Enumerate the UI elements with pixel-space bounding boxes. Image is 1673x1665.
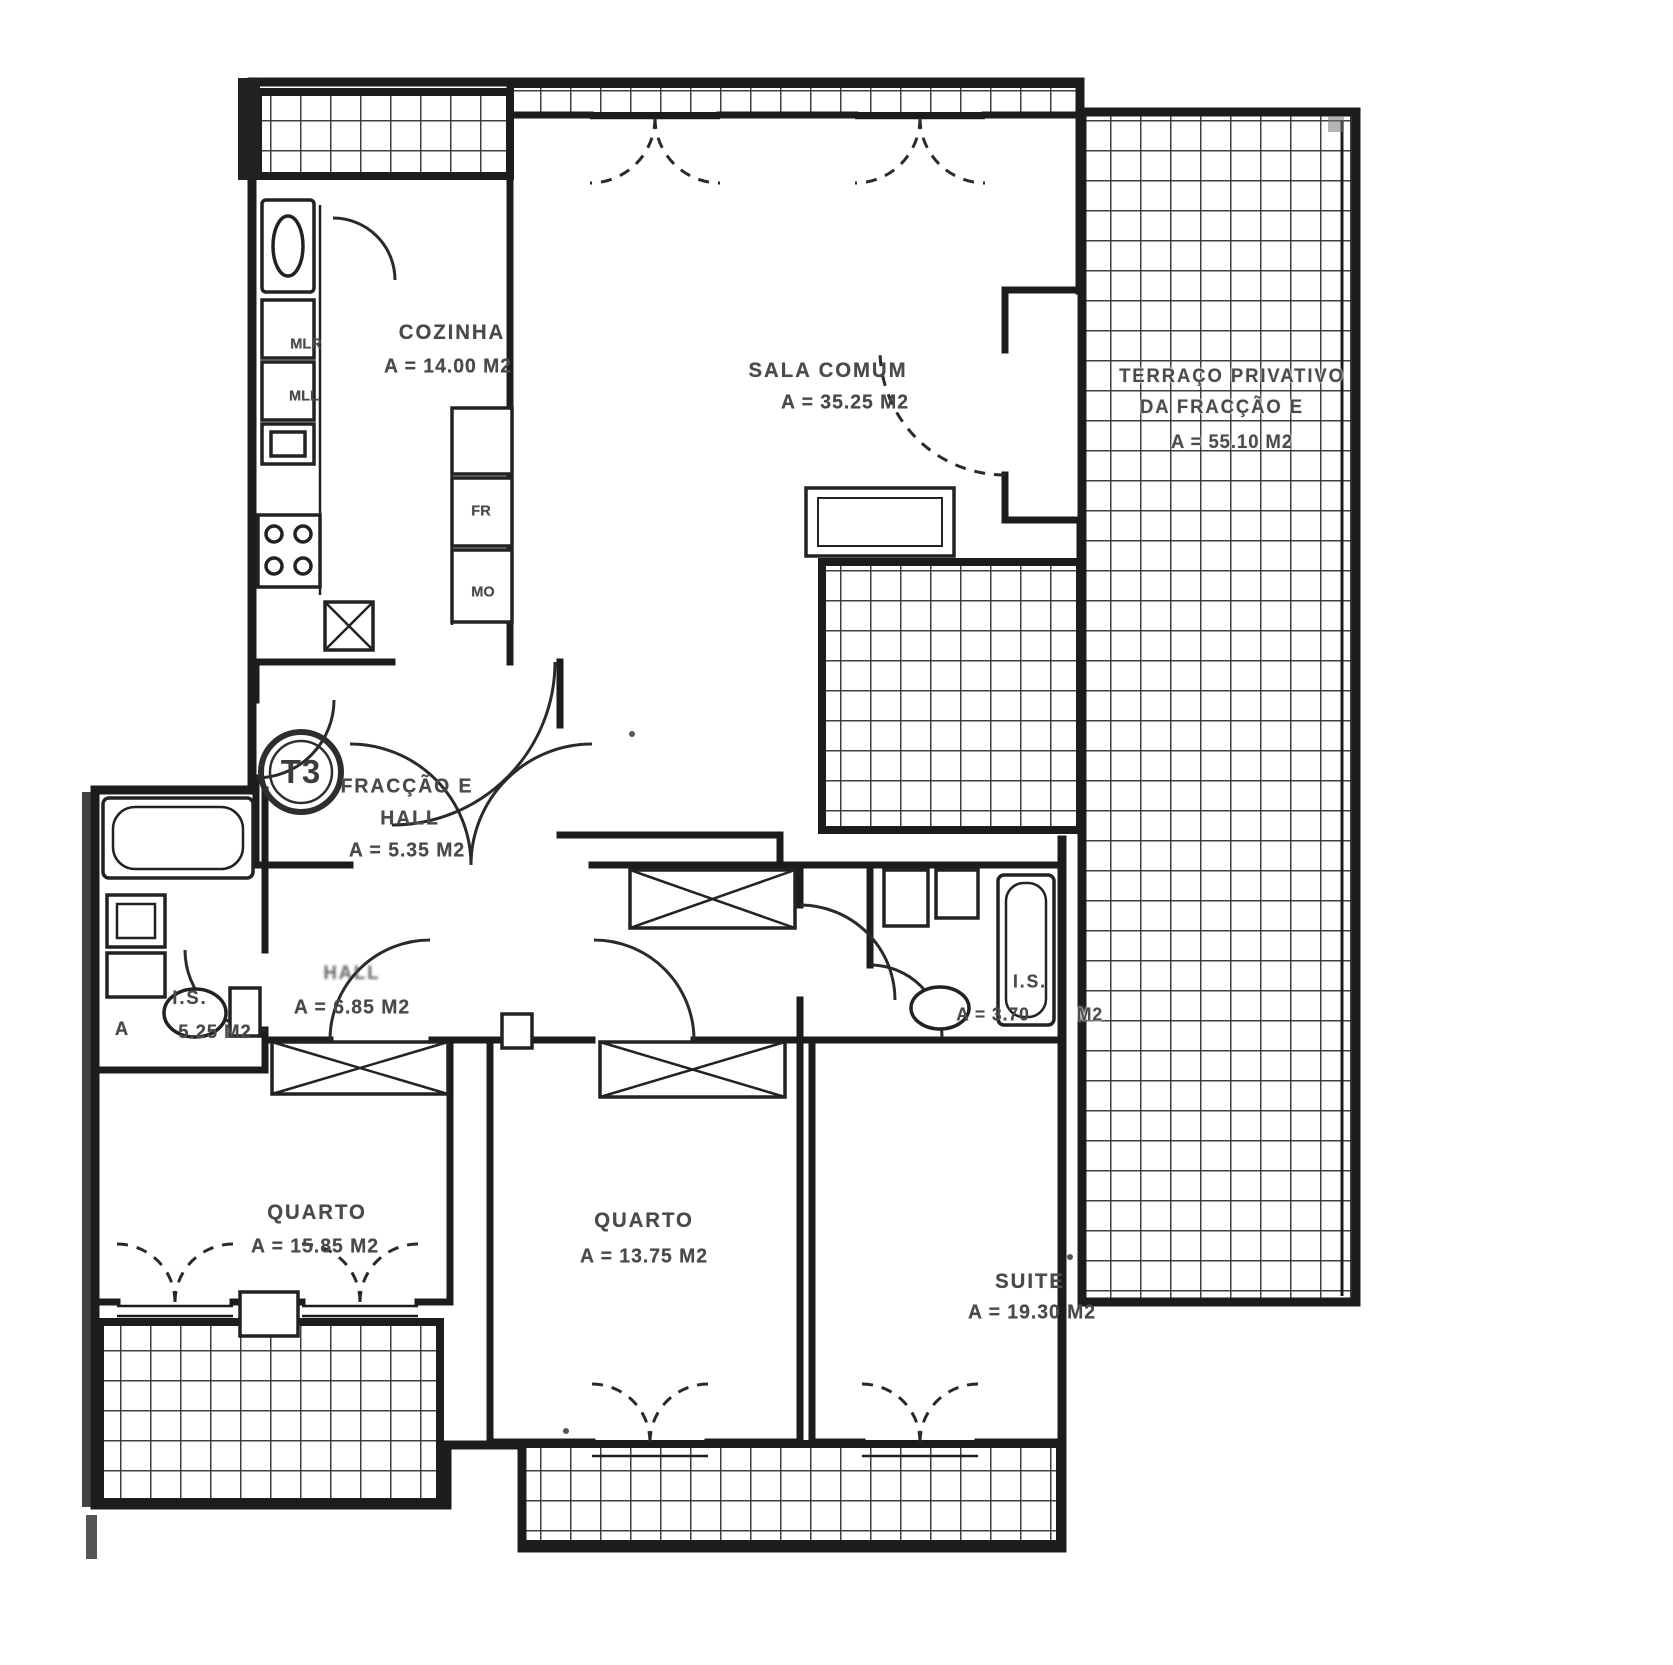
label-is-right-unit: M2	[1077, 1005, 1103, 1026]
pivot-block	[502, 1014, 532, 1048]
floorplan-page: COZINHA A = 14.00 M2 SALA COMUM A = 35.2…	[0, 0, 1673, 1665]
balcony-bottom-center	[522, 1444, 1060, 1544]
door-arc-entry-right	[471, 744, 592, 865]
bathtub-left-inner	[113, 807, 243, 869]
label-hall-area: A = 6.85 M2	[294, 997, 410, 1020]
unit-badge-label: T3	[281, 753, 322, 791]
sala-console-inner	[818, 498, 942, 546]
label-fraccao-line2: HALL	[380, 808, 439, 831]
label-is-right-name: I.S.	[1013, 972, 1047, 993]
label-quarto1-area: A = 15.85 M2	[251, 1236, 379, 1259]
kitchen-cabinet-inner	[271, 432, 305, 456]
door-arc-kitchen-top	[333, 218, 395, 280]
label-fraccao-line1: FRACÇÃO E	[341, 776, 474, 799]
label-quarto2-area: A = 13.75 M2	[580, 1246, 708, 1269]
door-arc-quarto2	[594, 940, 694, 1040]
label-is-right-area: A = 3.70	[956, 1005, 1030, 1026]
kitchen-tall-cabinet	[452, 408, 512, 474]
label-cozinha-area: A = 14.00 M2	[384, 356, 512, 379]
label-suite-area: A = 19.30 M2	[968, 1302, 1096, 1325]
label-sala-name: SALA COMUM	[749, 359, 908, 383]
door-arc-suite-lobby	[800, 905, 895, 1000]
label-fraccao-area: A = 5.35 M2	[349, 840, 465, 863]
floorplan-svg	[0, 0, 1673, 1665]
label-quarto1-name: QUARTO	[267, 1201, 367, 1225]
label-appliance-fr: FR	[471, 503, 490, 520]
terrace-inner-block	[822, 562, 1080, 830]
balcony-top-left	[258, 92, 510, 176]
kitchen-tub-basin	[273, 216, 303, 276]
terrace-main	[1082, 112, 1356, 1302]
planter-strip-top	[510, 85, 1080, 115]
label-appliance-mo: MO	[471, 584, 494, 601]
label-sala-area: A = 35.25 M2	[781, 392, 909, 415]
label-appliance-mll: MLL	[289, 388, 319, 405]
label-suite-name: SUITE	[995, 1270, 1065, 1294]
label-terraco-line1: TERRAÇO PRIVATIVO	[1119, 366, 1345, 388]
label-is-left-prefix: A	[115, 1019, 129, 1041]
label-terraco-area: A = 55.10 M2	[1171, 432, 1293, 454]
shelf-right-2	[936, 870, 978, 918]
label-terraco-line2: DA FRACÇÃO E	[1140, 397, 1304, 419]
balcony-pillar	[240, 1292, 298, 1336]
label-is-left-area: 5.25 M2	[178, 1022, 251, 1044]
door-arc-quarto1	[330, 940, 430, 1040]
label-quarto2-name: QUARTO	[594, 1209, 694, 1233]
balcony-bottom-left	[100, 1322, 440, 1502]
label-is-left-name: I.S.	[172, 988, 207, 1010]
label-appliance-mlr: MLR	[290, 336, 322, 353]
bidet-left	[107, 953, 165, 997]
label-hall-name: HALL	[324, 963, 381, 985]
door-arc-kitchen	[392, 662, 555, 825]
bathtub-right-inner	[1006, 883, 1046, 1017]
shelf-right-1	[884, 870, 928, 926]
stove	[258, 515, 320, 587]
label-cozinha-name: COZINHA	[399, 321, 505, 345]
